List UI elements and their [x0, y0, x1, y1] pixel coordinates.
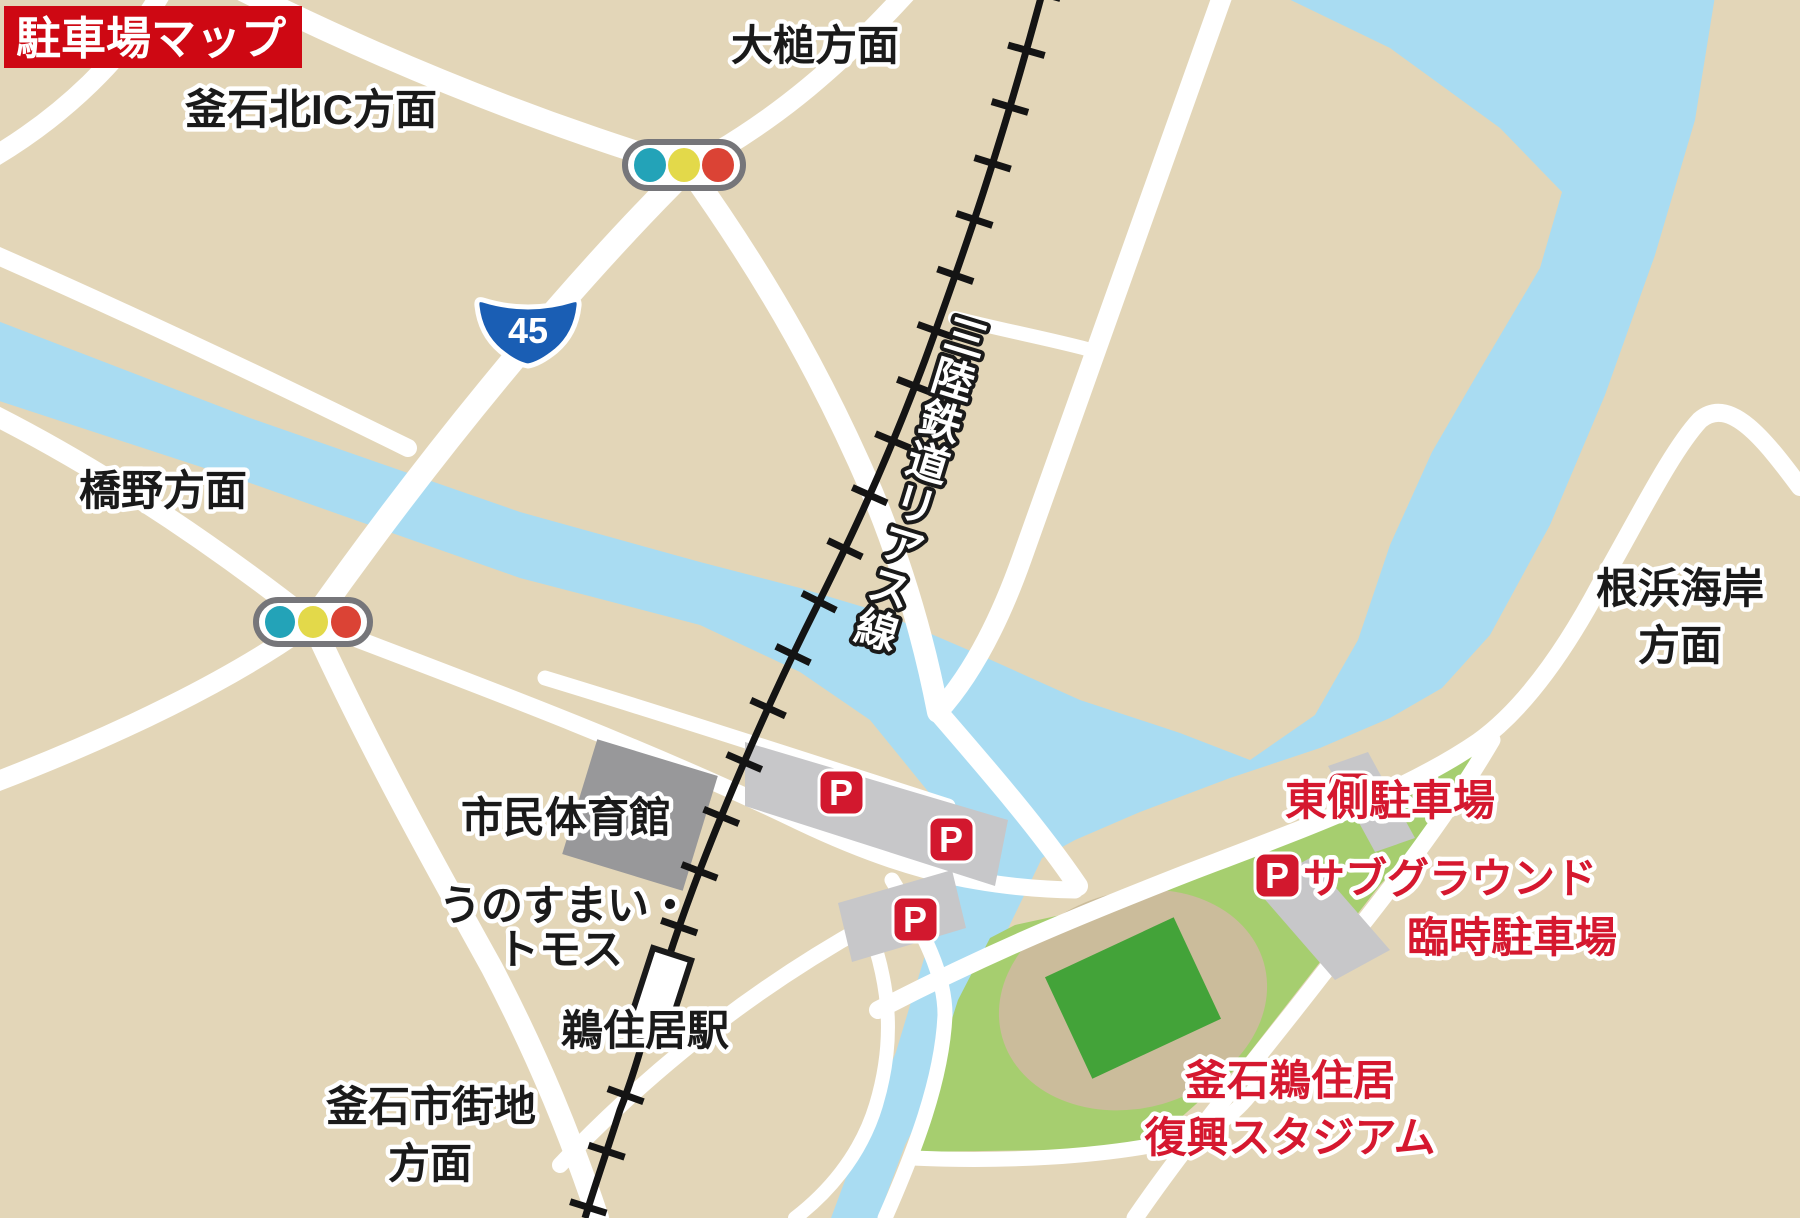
signal-yellow-light [298, 606, 328, 638]
label-subground-line1: サブグラウンド [1303, 855, 1597, 902]
parking-icon: P [819, 770, 864, 815]
label-kamaishi-city-line1: 釜石市街地 [325, 1083, 536, 1130]
label-otsuchi: 大槌方面 [731, 22, 899, 69]
label-tomosu-line1: うのすまい・ [439, 882, 691, 929]
signal-red-light [331, 606, 361, 638]
parking-icon: P [929, 817, 974, 862]
banner-title: 駐車場マップ [16, 13, 286, 64]
parking-icon-subground: P [1255, 853, 1300, 898]
traffic-signal-west [256, 600, 370, 644]
label-hashino: 橋野方面 [79, 467, 247, 514]
parking-icon-letter: P [829, 772, 853, 813]
label-subground-line2: 臨時駐車場 [1407, 914, 1617, 961]
traffic-signal-north [625, 142, 743, 188]
label-gymnasium: 市民体育館 [461, 794, 671, 841]
parking-map: 45 P P P P P 釜石北IC方面 大槌方面 橋野方面 根浜海岸 方面 釜… [0, 0, 1800, 1218]
signal-yellow-light [668, 148, 700, 182]
label-tomosu-line2: トモス [497, 926, 623, 973]
map-title-banner: 駐車場マップ [4, 6, 302, 68]
signal-green-light [634, 148, 666, 182]
parking-icon-letter: P [1265, 855, 1289, 896]
signal-red-light [702, 148, 734, 182]
signal-green-light [265, 606, 295, 638]
parking-icon-letter: P [939, 819, 963, 860]
label-stadium-line1: 釜石鵜住居 [1184, 1057, 1395, 1104]
label-stadium-line2: 復興スタジアム [1143, 1114, 1435, 1161]
label-kamaishi-city-line2: 方面 [388, 1140, 472, 1187]
label-east-parking: 東側駐車場 [1285, 777, 1495, 824]
parking-icon-letter: P [903, 899, 927, 940]
route-shield-number: 45 [508, 310, 548, 351]
parking-icon: P [893, 897, 938, 942]
label-station: 鵜住居駅 [561, 1007, 729, 1054]
label-kamaishi-kita-ic: 釜石北IC方面 [184, 86, 437, 133]
label-nebama-line2: 方面 [1638, 622, 1722, 669]
label-nebama-line1: 根浜海岸 [1596, 565, 1764, 612]
